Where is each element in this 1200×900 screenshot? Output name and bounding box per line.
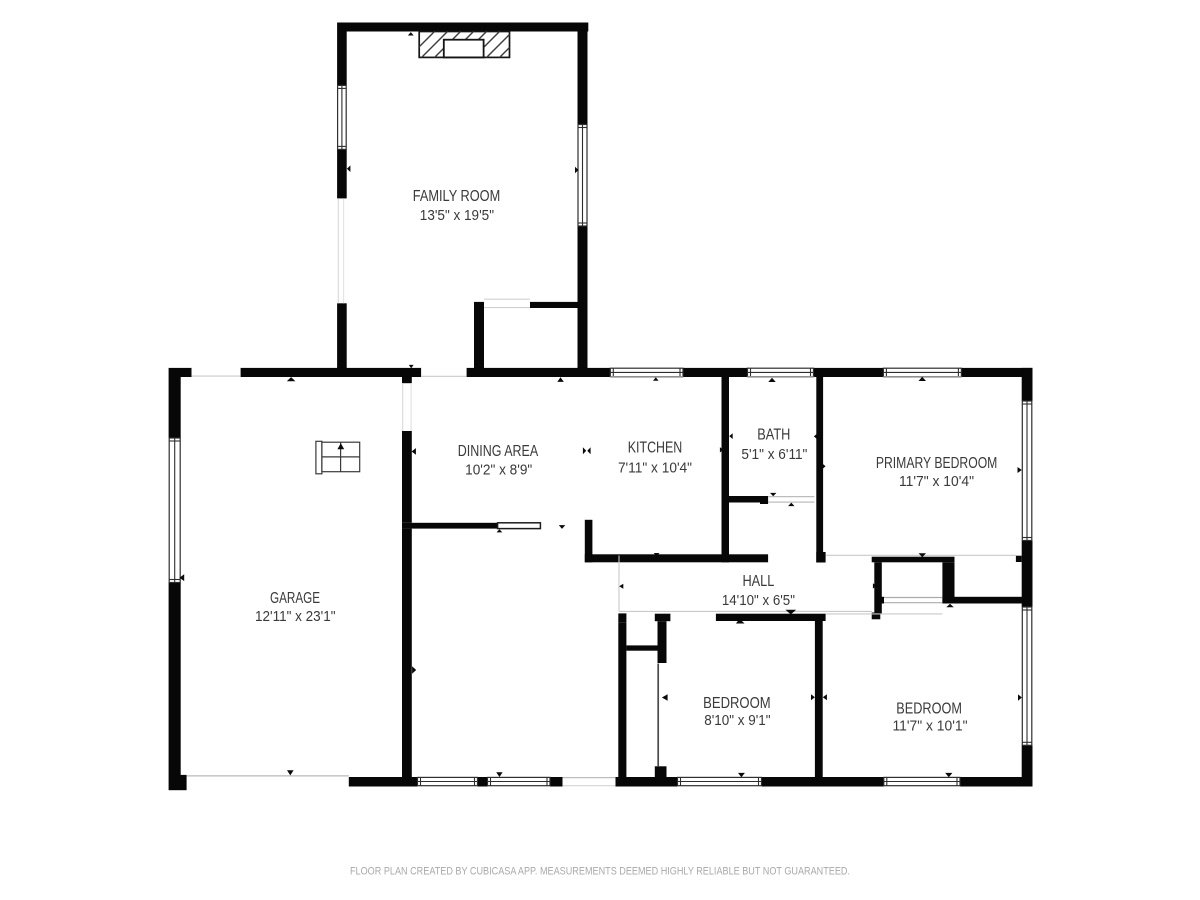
svg-text:FAMILY ROOM: FAMILY ROOM xyxy=(413,188,501,205)
svg-text:11'7" x 10'4": 11'7" x 10'4" xyxy=(899,473,974,490)
svg-text:8'10" x 9'1": 8'10" x 9'1" xyxy=(704,712,770,729)
svg-text:13'5" x 19'5": 13'5" x 19'5" xyxy=(420,207,494,224)
svg-text:BEDROOM: BEDROOM xyxy=(896,701,962,718)
svg-text:PRIMARY BEDROOM: PRIMARY BEDROOM xyxy=(876,455,998,472)
svg-text:11'7" x 10'1": 11'7" x 10'1" xyxy=(893,717,968,734)
svg-text:DINING AREA: DINING AREA xyxy=(458,443,539,460)
svg-text:FLOOR PLAN CREATED BY CUBICASA: FLOOR PLAN CREATED BY CUBICASA APP. MEAS… xyxy=(350,866,850,878)
svg-text:10'2" x 8'9": 10'2" x 8'9" xyxy=(465,461,532,478)
svg-text:5'1" x 6'11": 5'1" x 6'11" xyxy=(741,446,807,463)
svg-text:KITCHEN: KITCHEN xyxy=(628,440,683,457)
svg-text:GARAGE: GARAGE xyxy=(270,590,320,607)
svg-text:14'10" x 6'5": 14'10" x 6'5" xyxy=(722,592,795,609)
svg-text:BEDROOM: BEDROOM xyxy=(703,695,771,712)
svg-text:12'11" x 23'1": 12'11" x 23'1" xyxy=(255,608,336,625)
svg-text:BATH: BATH xyxy=(757,426,790,443)
svg-text:7'11" x 10'4": 7'11" x 10'4" xyxy=(618,459,692,476)
svg-text:HALL: HALL xyxy=(742,573,774,590)
